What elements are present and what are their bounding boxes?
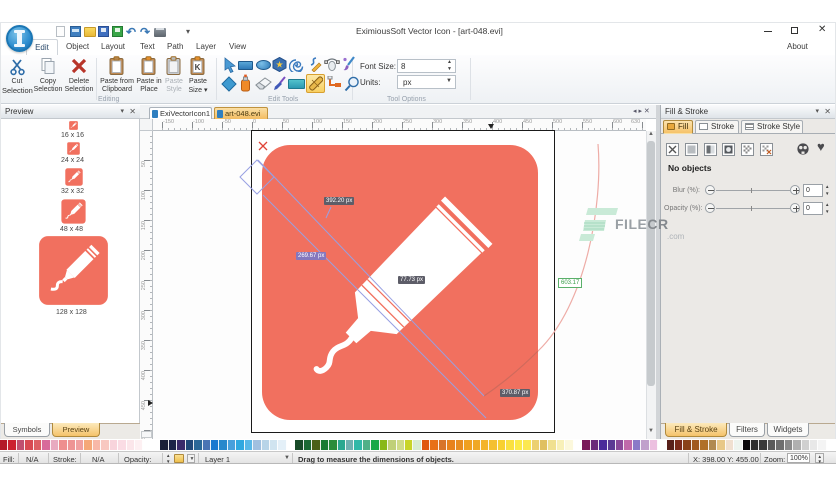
svg-text:★: ★ — [275, 60, 283, 70]
svg-text:K: K — [195, 63, 201, 72]
